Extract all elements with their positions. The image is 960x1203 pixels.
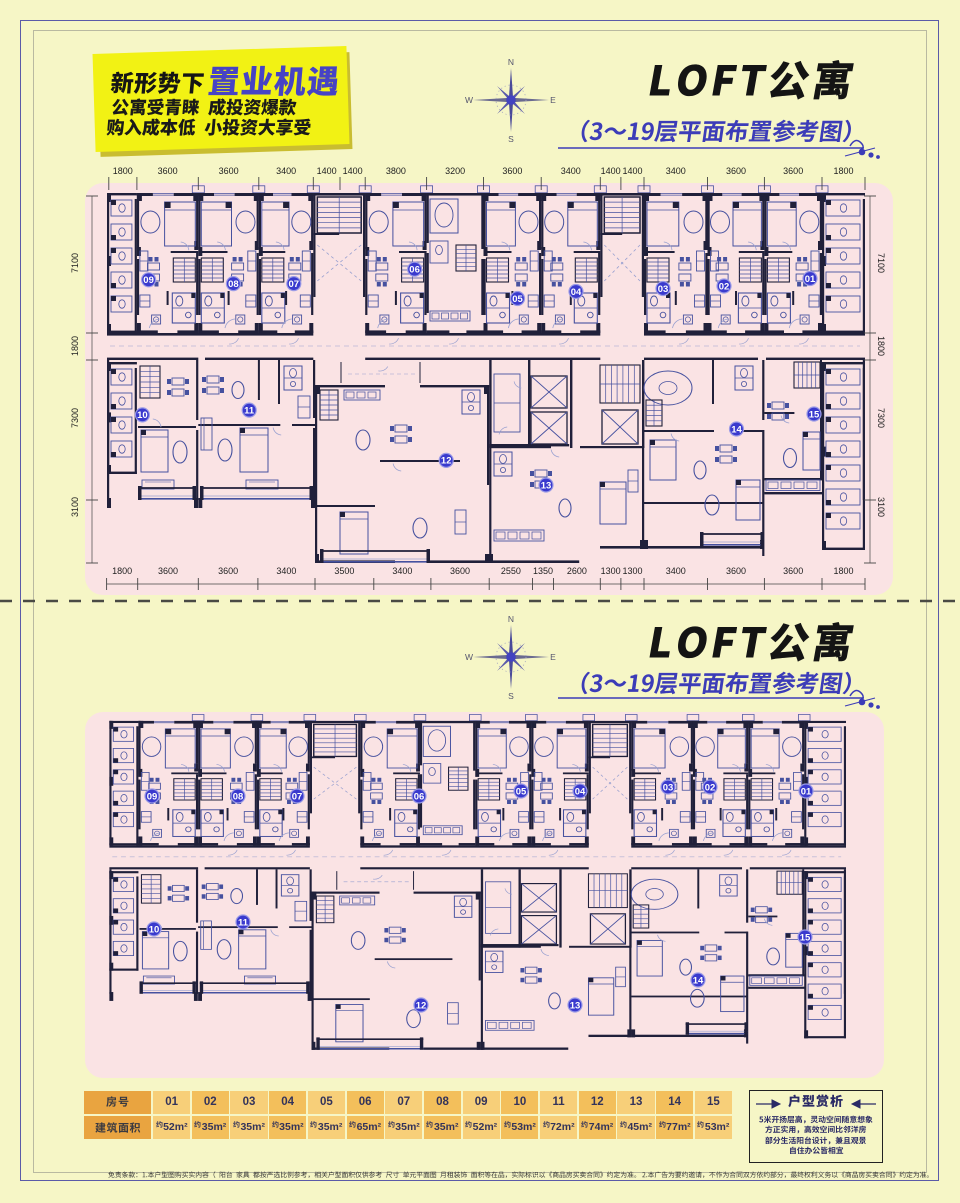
svg-text:03: 03 <box>663 782 674 793</box>
svg-text:3600: 3600 <box>218 566 238 576</box>
svg-text:3100: 3100 <box>70 497 80 517</box>
svg-text:05: 05 <box>512 294 523 305</box>
svg-text:01: 01 <box>805 274 816 285</box>
svg-text:7100: 7100 <box>876 253 886 273</box>
svg-text:04: 04 <box>571 287 582 298</box>
svg-text:07: 07 <box>292 791 303 802</box>
svg-text:3600: 3600 <box>783 566 803 576</box>
svg-text:3400: 3400 <box>561 166 581 176</box>
svg-text:15: 15 <box>800 932 811 943</box>
svg-text:1800: 1800 <box>833 166 853 176</box>
svg-text:3400: 3400 <box>392 566 412 576</box>
svg-text:11: 11 <box>244 405 255 416</box>
svg-text:14: 14 <box>731 424 742 435</box>
svg-text:1400: 1400 <box>317 166 337 176</box>
svg-text:3600: 3600 <box>450 566 470 576</box>
svg-text:1800: 1800 <box>112 566 132 576</box>
svg-text:10: 10 <box>137 410 148 421</box>
svg-text:3600: 3600 <box>726 566 746 576</box>
svg-text:7300: 7300 <box>876 408 886 428</box>
svg-text:3600: 3600 <box>726 166 746 176</box>
svg-text:06: 06 <box>414 791 425 802</box>
svg-text:1400: 1400 <box>601 166 621 176</box>
svg-text:1800: 1800 <box>70 336 80 356</box>
svg-text:1800: 1800 <box>833 566 853 576</box>
svg-text:3800: 3800 <box>386 166 406 176</box>
svg-text:03: 03 <box>658 284 669 295</box>
svg-text:08: 08 <box>228 279 239 290</box>
svg-text:3600: 3600 <box>219 166 239 176</box>
svg-text:3600: 3600 <box>158 166 178 176</box>
svg-text:08: 08 <box>233 791 244 802</box>
svg-text:7300: 7300 <box>70 408 80 428</box>
svg-text:12: 12 <box>441 456 452 467</box>
svg-text:01: 01 <box>801 786 812 797</box>
svg-text:2550: 2550 <box>501 566 521 576</box>
svg-text:09: 09 <box>147 791 158 802</box>
svg-text:06: 06 <box>409 265 420 276</box>
svg-text:1800: 1800 <box>876 336 886 356</box>
svg-text:3500: 3500 <box>334 566 354 576</box>
svg-text:13: 13 <box>541 480 552 491</box>
svg-text:11: 11 <box>238 917 249 928</box>
svg-text:15: 15 <box>809 409 820 420</box>
svg-text:3200: 3200 <box>445 166 465 176</box>
svg-text:1300: 1300 <box>622 566 642 576</box>
svg-text:14: 14 <box>693 975 704 986</box>
svg-text:3600: 3600 <box>158 566 178 576</box>
svg-text:1400: 1400 <box>343 166 363 176</box>
svg-text:3600: 3600 <box>502 166 522 176</box>
svg-text:3600: 3600 <box>783 166 803 176</box>
svg-text:7100: 7100 <box>70 253 80 273</box>
svg-text:2600: 2600 <box>567 566 587 576</box>
svg-text:02: 02 <box>705 782 716 793</box>
svg-text:3400: 3400 <box>276 566 296 576</box>
svg-text:04: 04 <box>575 786 586 797</box>
svg-text:3100: 3100 <box>876 497 886 517</box>
svg-text:1350: 1350 <box>533 566 553 576</box>
svg-text:1400: 1400 <box>622 166 642 176</box>
svg-text:05: 05 <box>516 786 527 797</box>
svg-text:3400: 3400 <box>666 166 686 176</box>
svg-text:07: 07 <box>289 279 300 290</box>
svg-text:3400: 3400 <box>666 566 686 576</box>
svg-text:1300: 1300 <box>601 566 621 576</box>
svg-text:1800: 1800 <box>113 166 133 176</box>
svg-text:10: 10 <box>149 924 160 935</box>
svg-text:12: 12 <box>416 1000 427 1011</box>
svg-text:13: 13 <box>570 1000 581 1011</box>
svg-text:02: 02 <box>719 281 730 292</box>
svg-text:09: 09 <box>143 275 154 286</box>
svg-text:3400: 3400 <box>276 166 296 176</box>
